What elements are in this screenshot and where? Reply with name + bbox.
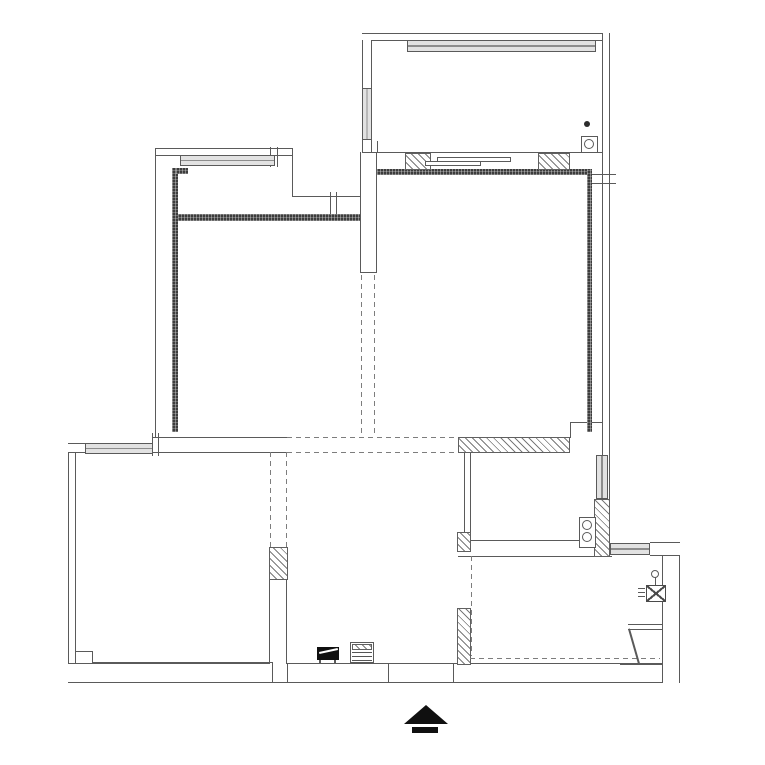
- bathroom-east-hatch-wall: [594, 499, 610, 557]
- bedroom1-west-stipple-wall: [172, 168, 178, 432]
- kitchen-north-line: [458, 556, 612, 557]
- wall-joint: [287, 663, 288, 683]
- removed-wall-dash: [270, 452, 271, 547]
- gas-meter-icon: [646, 585, 666, 602]
- wall-tick: [377, 141, 378, 152]
- bedroom1-step-line: [292, 196, 361, 197]
- faucet-point-icon: [584, 121, 590, 127]
- bedroom1-inner-stipple-wall: [178, 214, 360, 221]
- removed-wall-dash: [471, 556, 472, 656]
- wall-tick: [158, 433, 159, 456]
- kitchen-counter: [628, 624, 662, 630]
- wall-joint: [272, 663, 273, 683]
- living-room-window: [85, 443, 153, 454]
- entry-cabinet-symbol: [352, 644, 372, 650]
- entry-console-symbol: [319, 660, 321, 663]
- removed-wall-dash: [361, 275, 362, 437]
- water-heater-icon: [582, 532, 592, 542]
- living-pilaster: [76, 651, 93, 652]
- kitchen-east-wall: [662, 556, 680, 683]
- floor-plan: [0, 0, 765, 765]
- kitchen-west-hatch-wall: [457, 608, 471, 665]
- entrance-arrow-icon: [412, 727, 438, 733]
- removed-wall-dash: [287, 437, 458, 438]
- balcony-window: [407, 40, 596, 52]
- hall-divider-lower-wall: [269, 580, 287, 664]
- mid-boundary-line: [153, 452, 288, 453]
- bedroom2-east-stipple-wall: [587, 169, 592, 432]
- removed-wall-dash: [286, 452, 287, 547]
- bathroom-north-hatch-wall: [458, 437, 570, 453]
- removed-wall-dash: [287, 452, 458, 453]
- bathroom-step-line: [570, 422, 571, 438]
- balcony-hatch-wall: [538, 153, 570, 170]
- kitchen-window: [610, 543, 650, 555]
- gas-meter-icon: [638, 592, 645, 593]
- west-upper-outer-line: [155, 148, 156, 438]
- balcony-side-window: [362, 88, 372, 140]
- removed-wall-dash: [470, 658, 660, 659]
- balcony-west-wall-upper: [362, 40, 372, 89]
- gas-meter-icon: [638, 588, 645, 589]
- bathroom-window: [596, 455, 608, 499]
- entrance-arrow-icon: [404, 705, 448, 724]
- bedroom1-window: [180, 155, 275, 166]
- counter-base-line: [620, 664, 662, 665]
- removed-wall-dash: [374, 275, 375, 437]
- bedroom1-step-line: [292, 148, 293, 197]
- floor-drain-icon: [584, 139, 594, 149]
- south-outer-wall: [68, 663, 680, 683]
- entry-cabinet-symbol: [352, 652, 372, 662]
- sliding-door: [425, 161, 481, 166]
- hall-divider-hatch-wall: [269, 547, 288, 580]
- sw-corner-wall: [68, 443, 86, 453]
- water-heater-icon: [582, 520, 592, 530]
- bathroom-west-wall: [464, 453, 471, 532]
- entry-console-symbol: [334, 660, 336, 663]
- living-south-line: [92, 662, 273, 663]
- wall-tick: [371, 141, 372, 152]
- bedroom1-stipple-notch: [176, 168, 188, 174]
- divider-wall-end: [360, 272, 377, 273]
- west-outer-wall: [68, 443, 76, 683]
- window-end-tick: [277, 147, 278, 167]
- bathroom-south-line: [465, 540, 580, 541]
- wall-joint: [388, 663, 389, 683]
- wall-joint: [453, 663, 454, 683]
- east-wall-tick: [592, 183, 616, 184]
- gas-meter-icon: [638, 596, 645, 597]
- mid-boundary-line: [153, 437, 288, 438]
- kitchen-ne-corner-wall: [650, 542, 680, 556]
- bedroom-divider-wall: [360, 152, 377, 273]
- east-wall-tick: [592, 174, 616, 175]
- kitchen-west-hatch-wall: [457, 532, 471, 552]
